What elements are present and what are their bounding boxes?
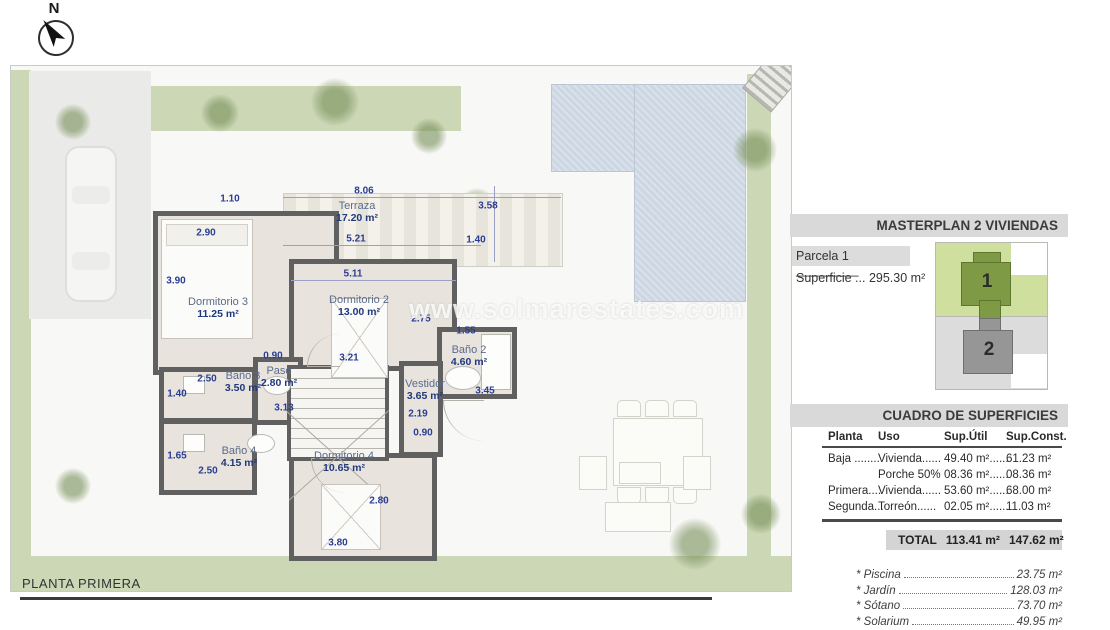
room-label: Dormitorio 213.00 m² bbox=[329, 294, 389, 318]
extras-value: 73.70 m² bbox=[1017, 599, 1062, 615]
dimension-label: 3.13 bbox=[274, 403, 293, 414]
room-name: Vestidor bbox=[405, 378, 445, 390]
table-cell: 11.03 m² bbox=[1006, 499, 1062, 515]
chair bbox=[673, 400, 697, 417]
palm-tree-icon bbox=[669, 518, 721, 570]
table-row: Segunda...Torreón......02.05 m²......11.… bbox=[822, 499, 1062, 515]
room-name: Terraza bbox=[336, 200, 378, 212]
room-area: 4.15 m² bbox=[221, 457, 257, 469]
dimension-label: 3.21 bbox=[339, 353, 358, 364]
garden-strip-left bbox=[11, 70, 31, 591]
total-row: TOTAL 113.41 m² 147.62 m² bbox=[886, 530, 1062, 550]
dotted-leader bbox=[899, 593, 1008, 594]
table-cell: 08.36 m² bbox=[1006, 467, 1062, 483]
dimension-label: 2.90 bbox=[196, 228, 215, 239]
table-cell: Vivienda...... bbox=[878, 483, 944, 499]
room-name: Dormitorio 4 bbox=[314, 450, 374, 462]
room-name: Paso bbox=[261, 365, 297, 377]
room-area: 10.65 m² bbox=[314, 462, 374, 474]
palm-tree-icon bbox=[311, 78, 359, 126]
armchair bbox=[683, 456, 711, 490]
tree-icon bbox=[55, 468, 91, 504]
parcela-superficie: Superficie ... 295.30 m² bbox=[796, 271, 925, 285]
total-const: 147.62 m² bbox=[1009, 533, 1064, 547]
sink bbox=[183, 434, 205, 452]
staircase bbox=[287, 365, 389, 461]
dimension-label: 1.40 bbox=[466, 235, 485, 246]
chair bbox=[645, 400, 669, 417]
room-label: Vestidor3.65 m² bbox=[405, 378, 445, 402]
dimension-label: 1.55 bbox=[456, 326, 475, 337]
room-label: Baño 24.60 m² bbox=[451, 344, 487, 368]
cuadro-title-bar: CUADRO DE SUPERFICIES bbox=[790, 404, 1068, 427]
masterplan-title-bar: MASTERPLAN 2 VIVIENDAS bbox=[790, 214, 1068, 237]
room-area: 11.25 m² bbox=[188, 308, 248, 320]
room-label: Terraza17.20 m² bbox=[336, 200, 378, 224]
room-label: Baño 44.15 m² bbox=[221, 445, 257, 469]
dimension-line bbox=[291, 280, 456, 281]
extras-label: * Sótano bbox=[856, 599, 900, 615]
table-cell: 08.36 m²...... bbox=[944, 467, 1006, 483]
table-cell: Vivienda...... bbox=[878, 451, 944, 467]
col-header: Sup.Const. bbox=[1006, 431, 1062, 443]
table-row: Primera....Vivienda......53.60 m²......6… bbox=[822, 483, 1062, 499]
dimension-label: 3.45 bbox=[475, 386, 494, 397]
room-area: 13.00 m² bbox=[329, 306, 389, 318]
dimension-label: 3.80 bbox=[328, 538, 347, 549]
table-row: Porche 50%08.36 m²......08.36 m² bbox=[822, 467, 1062, 483]
sofa bbox=[605, 502, 671, 532]
dotted-leader bbox=[903, 608, 1013, 609]
dimension-label: 2.19 bbox=[408, 409, 427, 420]
dimension-label: 2.80 bbox=[369, 496, 388, 507]
tree-icon bbox=[201, 94, 239, 132]
masterplan-diagram: 1 2 bbox=[935, 242, 1048, 390]
pool bbox=[551, 84, 637, 172]
dimension-label: 5.11 bbox=[344, 269, 363, 280]
room-name: Dormitorio 2 bbox=[329, 294, 389, 306]
room-area: 17.20 m² bbox=[336, 212, 378, 224]
chair bbox=[617, 400, 641, 417]
palm-tree-icon bbox=[411, 118, 447, 154]
dimension-label: 2.50 bbox=[198, 466, 217, 477]
door-arc bbox=[443, 400, 484, 441]
surfaces-table-header: Planta Uso Sup.Útil Sup.Const. bbox=[822, 431, 1062, 448]
total-util: 113.41 m² bbox=[946, 533, 1000, 547]
dimension-line bbox=[494, 186, 495, 262]
dimension-label: 1.40 bbox=[167, 389, 186, 400]
surfaces-table: Planta Uso Sup.Útil Sup.Const. Baja ....… bbox=[822, 431, 1062, 522]
dimension-line bbox=[283, 245, 481, 246]
table-cell: 02.05 m²...... bbox=[944, 499, 1006, 515]
plan-title: PLANTA PRIMERA bbox=[22, 576, 141, 591]
room-area: 4.60 m² bbox=[451, 356, 487, 368]
palm-tree-icon bbox=[741, 494, 781, 534]
parcela-label: Parcela 1 _________ bbox=[792, 246, 910, 266]
table-cell: Baja ........ bbox=[822, 451, 878, 467]
col-header: Uso bbox=[878, 431, 944, 443]
floor-plan: 8.061.103.582.905.211.405.113.902.751.55… bbox=[10, 65, 792, 592]
plot-2-number: 2 bbox=[984, 339, 995, 361]
room-area: 3.50 m² bbox=[225, 382, 261, 394]
extras-row: * Jardín128.03 m² bbox=[856, 584, 1062, 600]
dimension-label: 8.06 bbox=[354, 186, 373, 197]
pool bbox=[634, 84, 746, 302]
table-cell: 53.60 m²...... bbox=[944, 483, 1006, 499]
col-header: Planta bbox=[822, 431, 878, 443]
table-cell: 61.23 m² bbox=[1006, 451, 1062, 467]
compass-north-label: N bbox=[49, 0, 60, 17]
dimension-label: 5.21 bbox=[346, 234, 365, 245]
dimension-label: 1.10 bbox=[220, 194, 239, 205]
title-rule bbox=[20, 597, 712, 600]
dimension-line bbox=[283, 197, 561, 198]
table-cell: Segunda... bbox=[822, 499, 878, 515]
dimension-label: 3.58 bbox=[478, 201, 497, 212]
field-notch bbox=[1011, 354, 1047, 388]
extras-row: * Piscina23.75 m² bbox=[856, 568, 1062, 584]
total-label: TOTAL bbox=[898, 533, 937, 547]
extras-value: 128.03 m² bbox=[1010, 584, 1062, 600]
north-compass-icon: N bbox=[28, 0, 84, 62]
room-name: Baño 3 bbox=[225, 370, 261, 382]
extras-row: * Sótano73.70 m² bbox=[856, 599, 1062, 615]
table-cell: 68.00 m² bbox=[1006, 483, 1062, 499]
extras-label: * Jardín bbox=[856, 584, 896, 600]
col-header: Sup.Útil bbox=[944, 431, 1006, 443]
extras-label: * Piscina bbox=[856, 568, 901, 584]
car-icon bbox=[65, 146, 117, 302]
coffee-table bbox=[619, 462, 661, 484]
room-name: Baño 2 bbox=[451, 344, 487, 356]
table-cell: Porche 50% bbox=[878, 467, 944, 483]
table-row: Baja ........Vivienda......49.40 m².....… bbox=[822, 451, 1062, 467]
room-area: 3.65 m² bbox=[405, 390, 445, 402]
surfaces-table-rows: Baja ........Vivienda......49.40 m².....… bbox=[822, 448, 1062, 522]
dimension-label: 0.90 bbox=[413, 428, 432, 439]
floorplan-page: { "compass": { "label": "N" }, "watermar… bbox=[0, 0, 1110, 626]
dimension-label: 3.90 bbox=[166, 276, 185, 287]
room-label: Paso2.80 m² bbox=[261, 365, 297, 389]
room-label: Baño 33.50 m² bbox=[225, 370, 261, 394]
room-name: Dormitorio 3 bbox=[188, 296, 248, 308]
room-area: 2.80 m² bbox=[261, 377, 297, 389]
armchair bbox=[579, 456, 607, 490]
table-cell: Primera.... bbox=[822, 483, 878, 499]
extras-label: * Solarium bbox=[856, 615, 909, 630]
table-cell bbox=[822, 467, 878, 483]
room-label: Dormitorio 311.25 m² bbox=[188, 296, 248, 320]
dimension-label: 2.50 bbox=[197, 374, 216, 385]
table-cell: 49.40 m²...... bbox=[944, 451, 1006, 467]
room-label: Dormitorio 410.65 m² bbox=[314, 450, 374, 474]
dotted-leader bbox=[912, 624, 1014, 625]
room-name: Baño 4 bbox=[221, 445, 257, 457]
extras-row: * Solarium49.95 m² bbox=[856, 615, 1062, 630]
dotted-leader bbox=[904, 577, 1014, 578]
extras-value: 49.95 m² bbox=[1017, 615, 1062, 630]
table-cell: Torreón...... bbox=[878, 499, 944, 515]
palm-tree-icon bbox=[733, 128, 777, 172]
dimension-label: 1.65 bbox=[167, 451, 186, 462]
dimension-label: 0.90 bbox=[263, 351, 282, 362]
plot-1-number: 1 bbox=[982, 271, 993, 293]
watermark: www.solmarestates.com bbox=[409, 294, 744, 325]
extras-value: 23.75 m² bbox=[1017, 568, 1062, 584]
field-notch bbox=[1011, 243, 1047, 275]
tree-icon bbox=[55, 104, 91, 140]
extras-list: * Piscina23.75 m²* Jardín128.03 m²* Sóta… bbox=[856, 568, 1062, 630]
